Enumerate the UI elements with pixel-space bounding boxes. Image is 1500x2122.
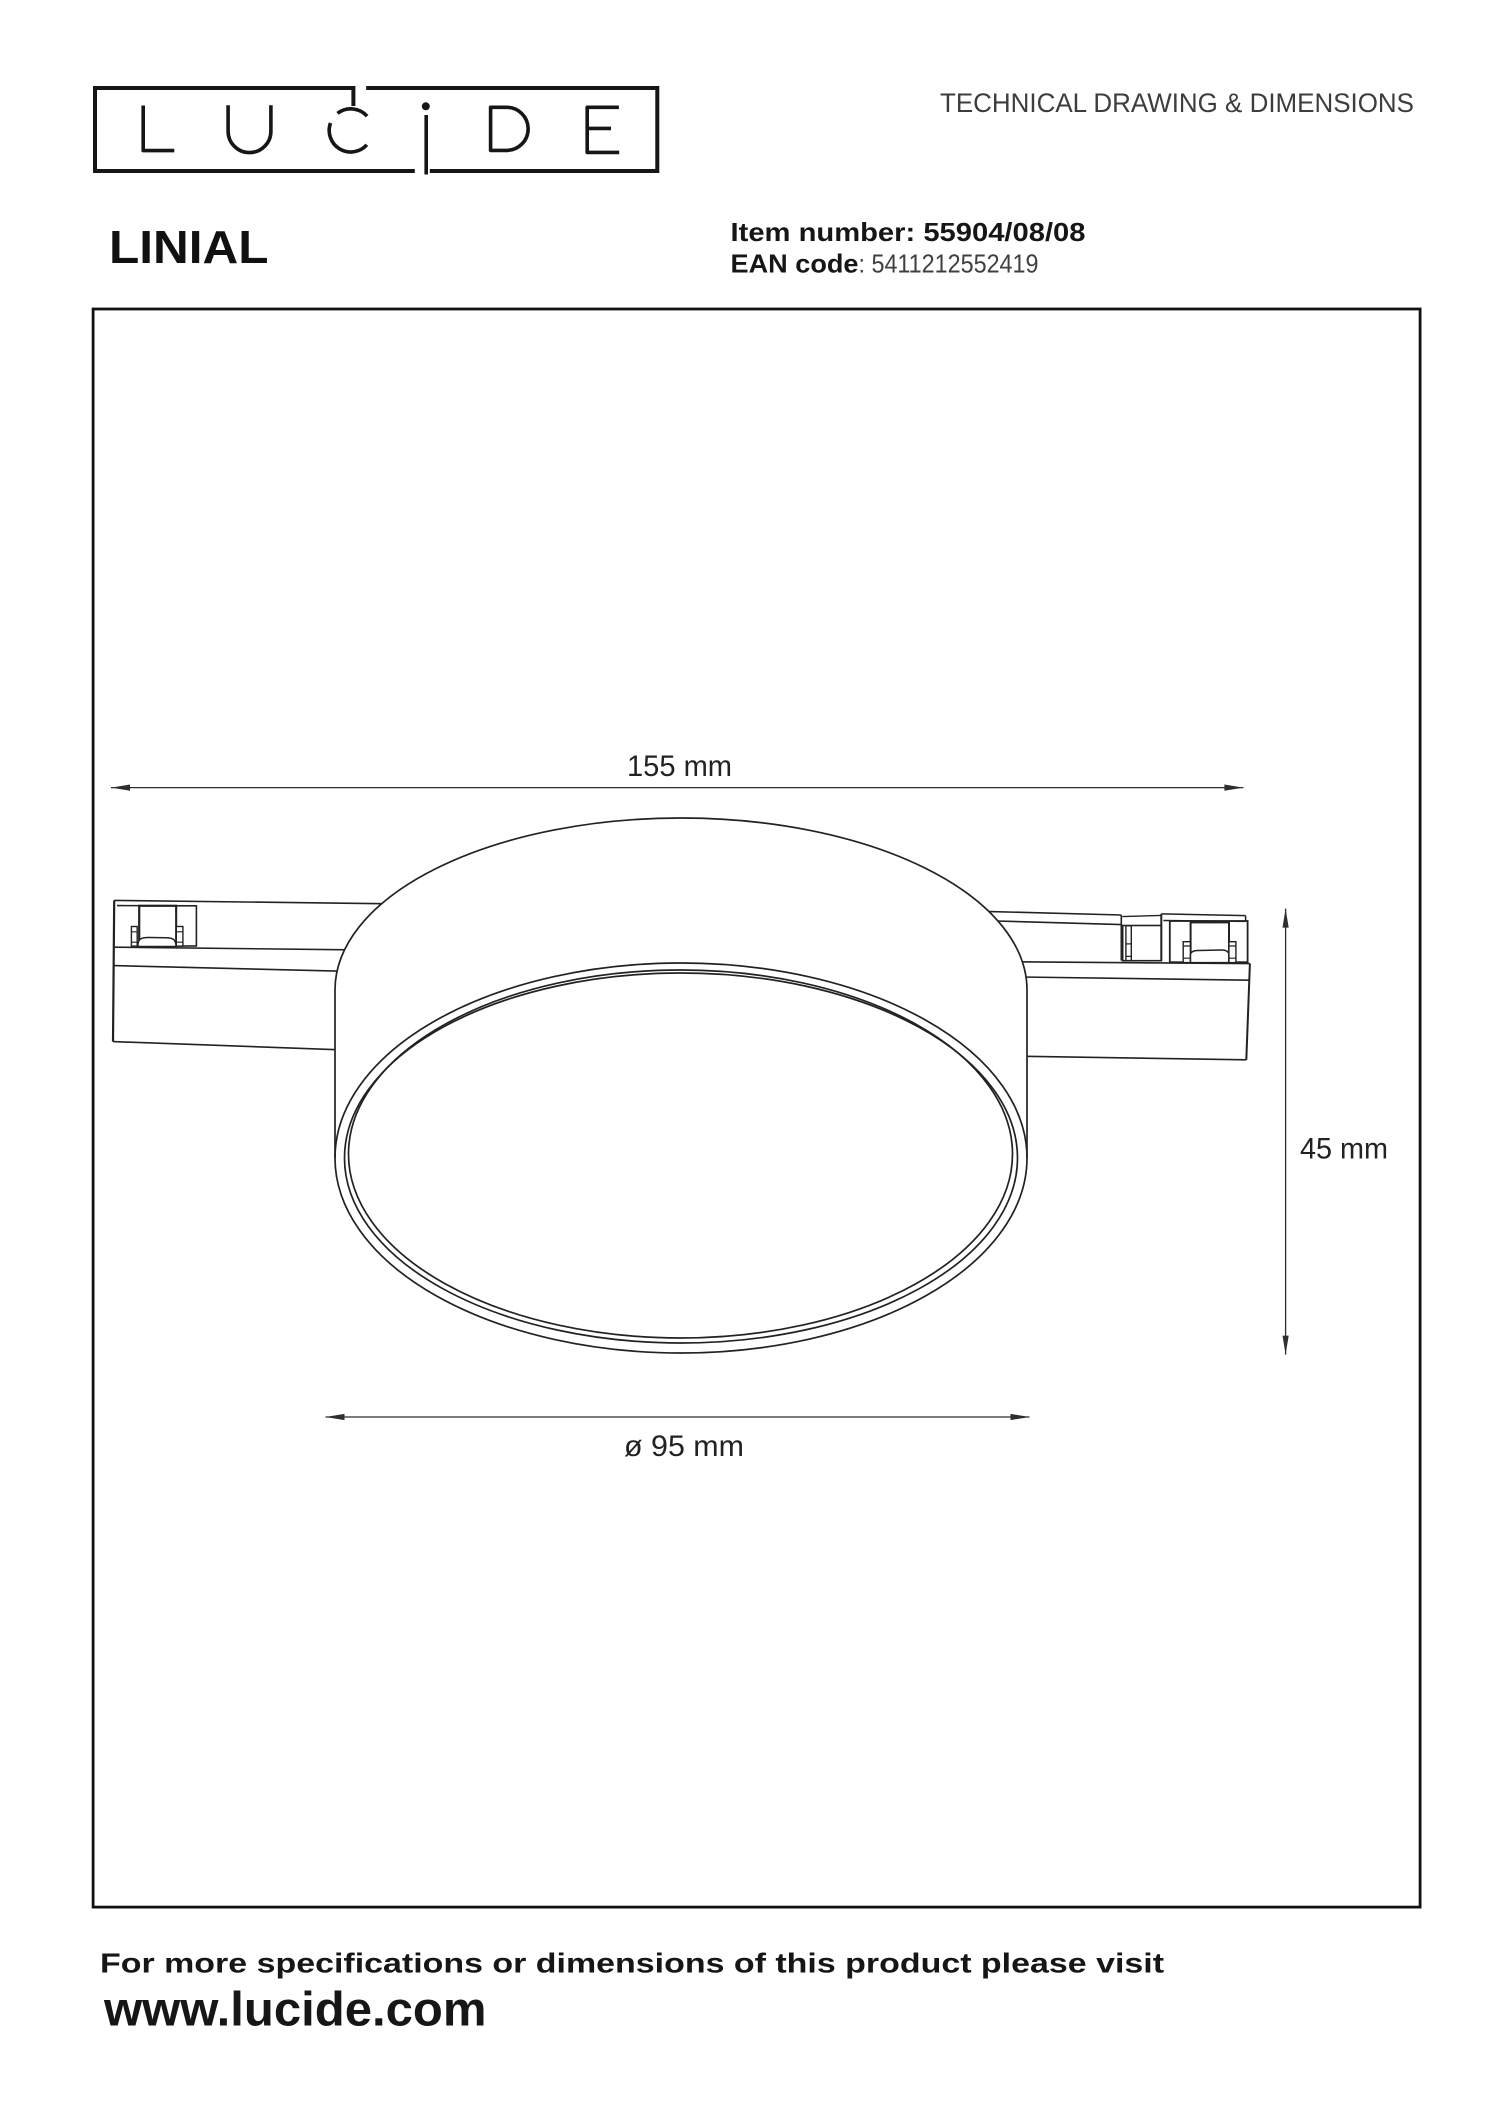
svg-text:: 5411212552419: : 5411212552419 [859,249,1039,279]
svg-text:TECHNICAL DRAWING & DIMENSIONS: TECHNICAL DRAWING & DIMENSIONS [940,88,1414,118]
svg-text:155 mm: 155 mm [627,750,732,783]
svg-text:LINIAL: LINIAL [109,221,269,273]
svg-text:For more specifications or dim: For more specifications or dimensions of… [100,1948,1164,1979]
svg-text:ø 95 mm: ø 95 mm [624,1430,744,1463]
svg-text:EAN code: EAN code [731,249,859,279]
svg-text:www.lucide.com: www.lucide.com [103,1983,487,2036]
svg-text:45 mm: 45 mm [1300,1133,1388,1166]
svg-text:Item number: 55904/08/08: Item number: 55904/08/08 [731,217,1086,247]
